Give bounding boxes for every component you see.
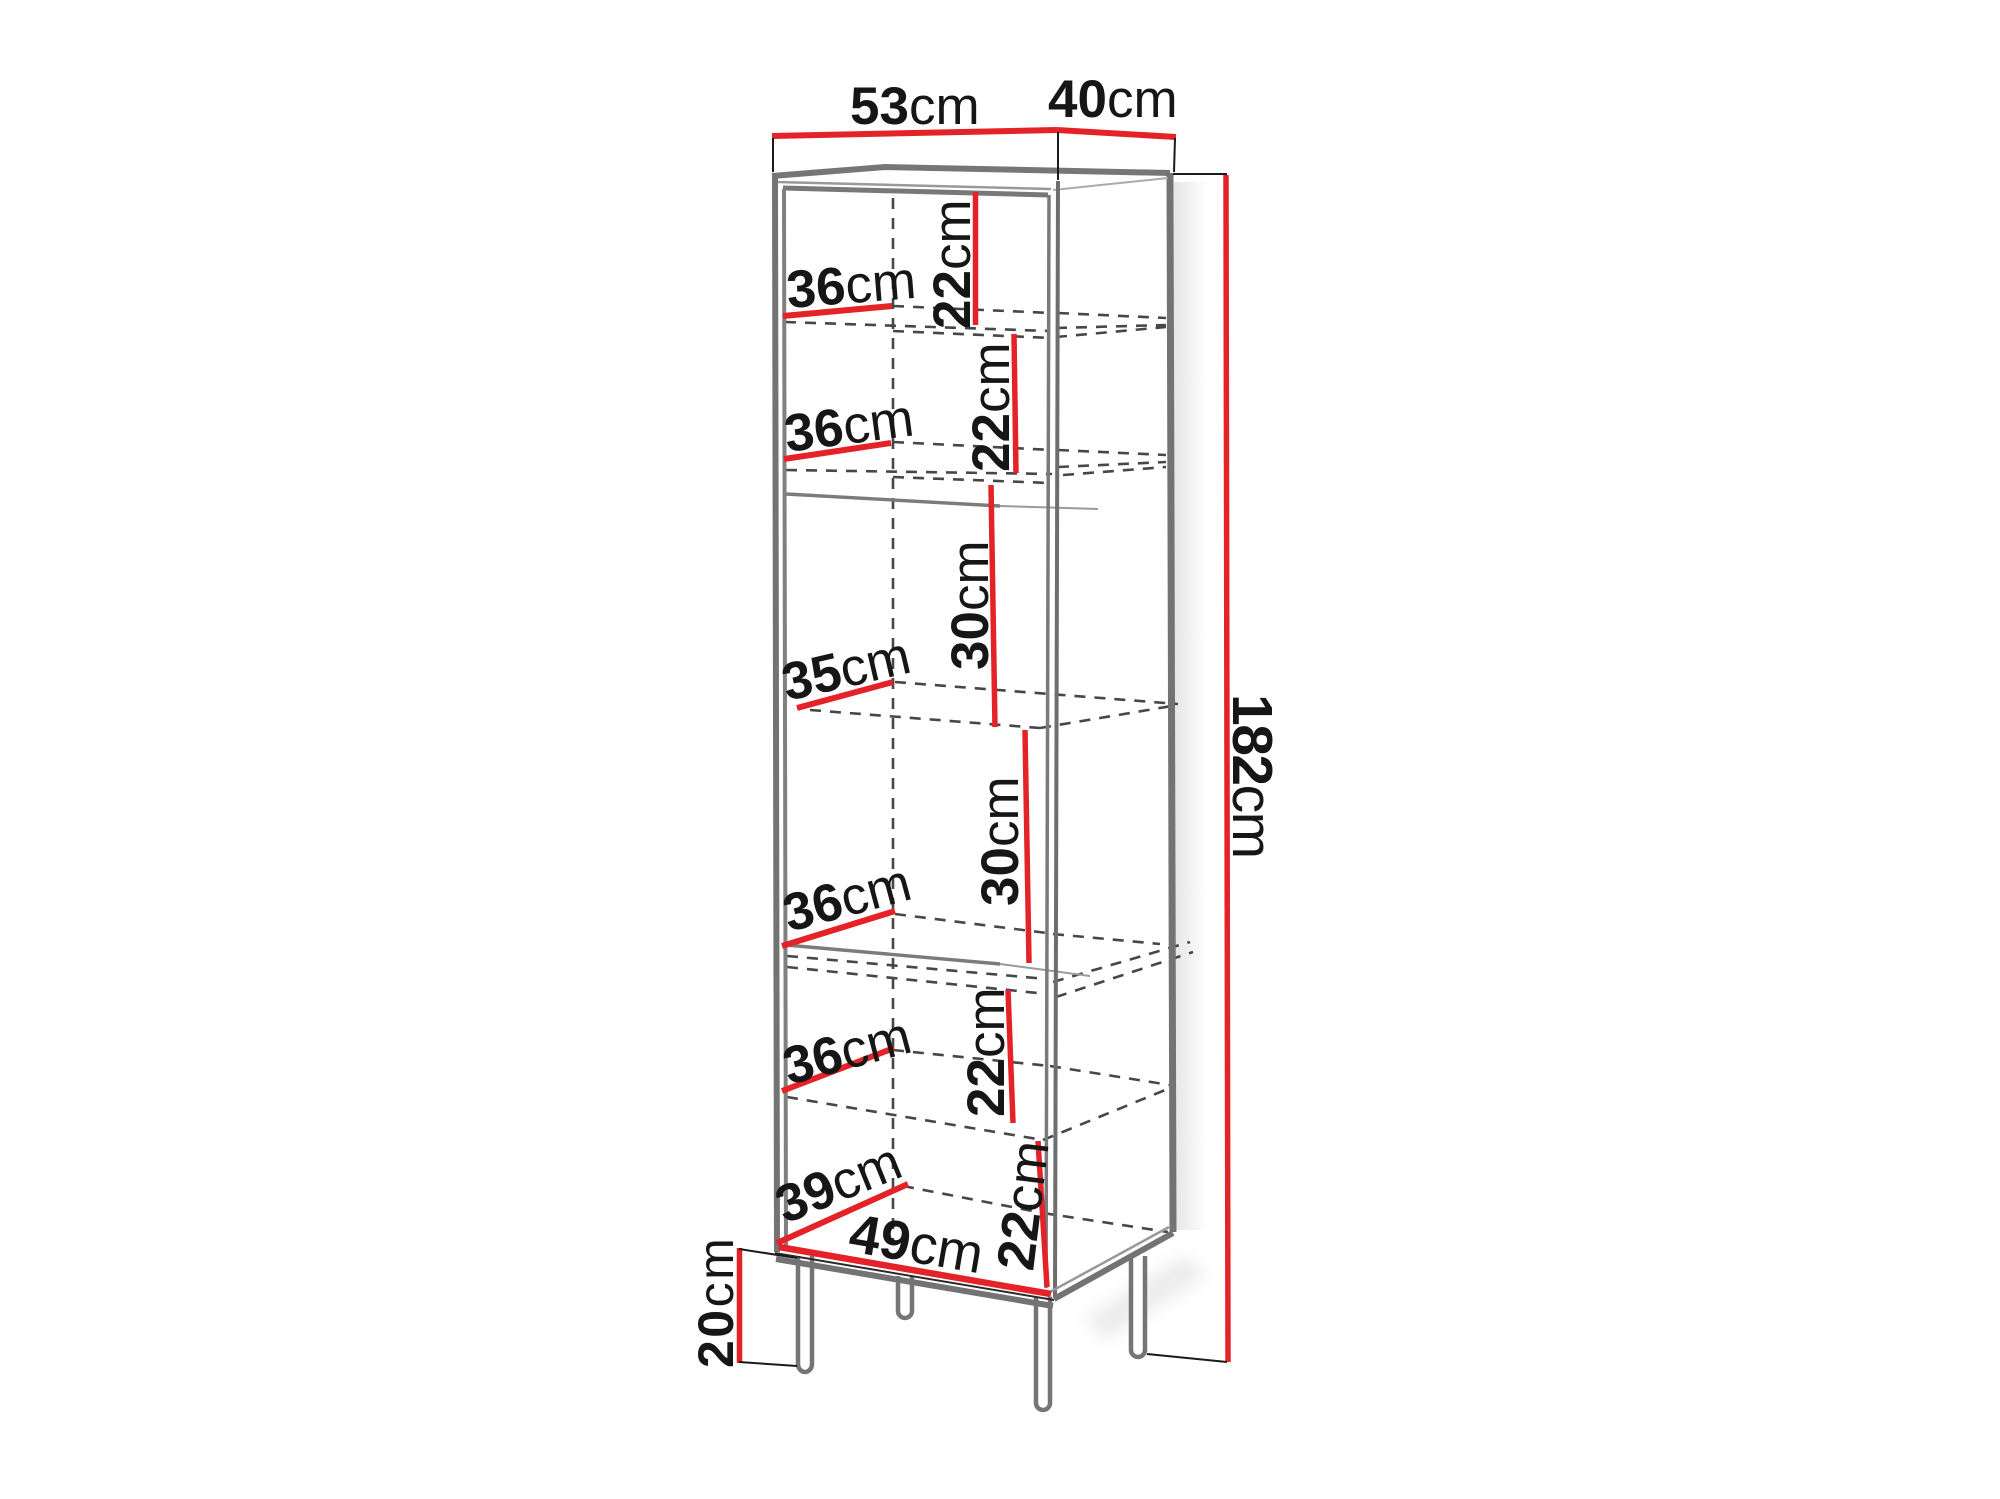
svg-text:36cm: 36cm — [784, 251, 918, 320]
svg-text:53cm: 53cm — [850, 77, 980, 136]
svg-text:22cm: 22cm — [957, 987, 1016, 1117]
svg-text:30cm: 30cm — [941, 540, 1000, 670]
svg-text:22cm: 22cm — [962, 342, 1021, 472]
svg-text:30cm: 30cm — [971, 776, 1030, 906]
svg-text:182cm: 182cm — [1220, 694, 1284, 858]
svg-text:40cm: 40cm — [1048, 70, 1178, 129]
svg-text:20cm: 20cm — [688, 1236, 744, 1368]
svg-text:22cm: 22cm — [923, 199, 982, 329]
